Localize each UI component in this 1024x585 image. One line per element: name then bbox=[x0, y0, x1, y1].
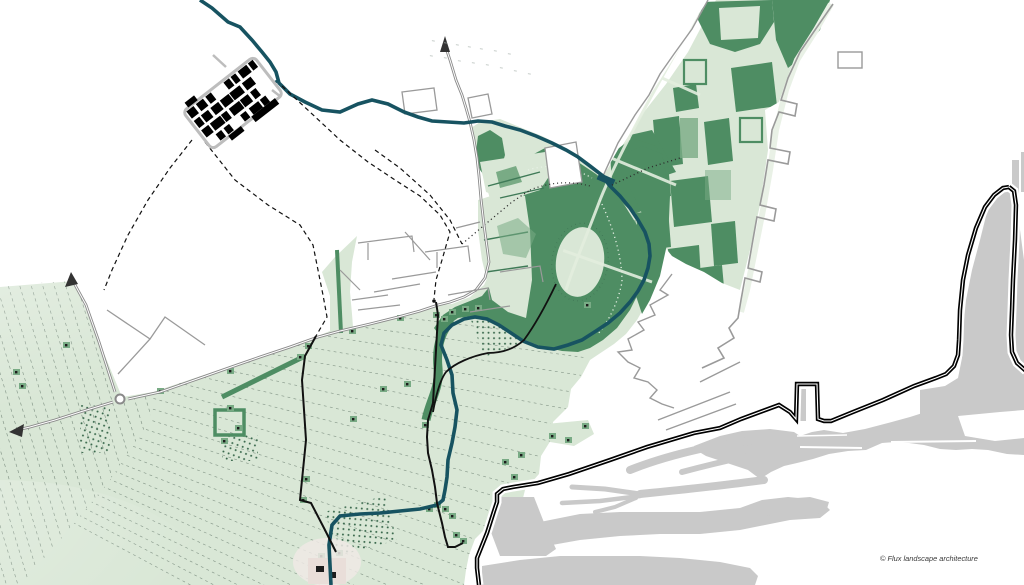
svg-text:© Flux landscape architecture: © Flux landscape architecture bbox=[880, 554, 978, 563]
